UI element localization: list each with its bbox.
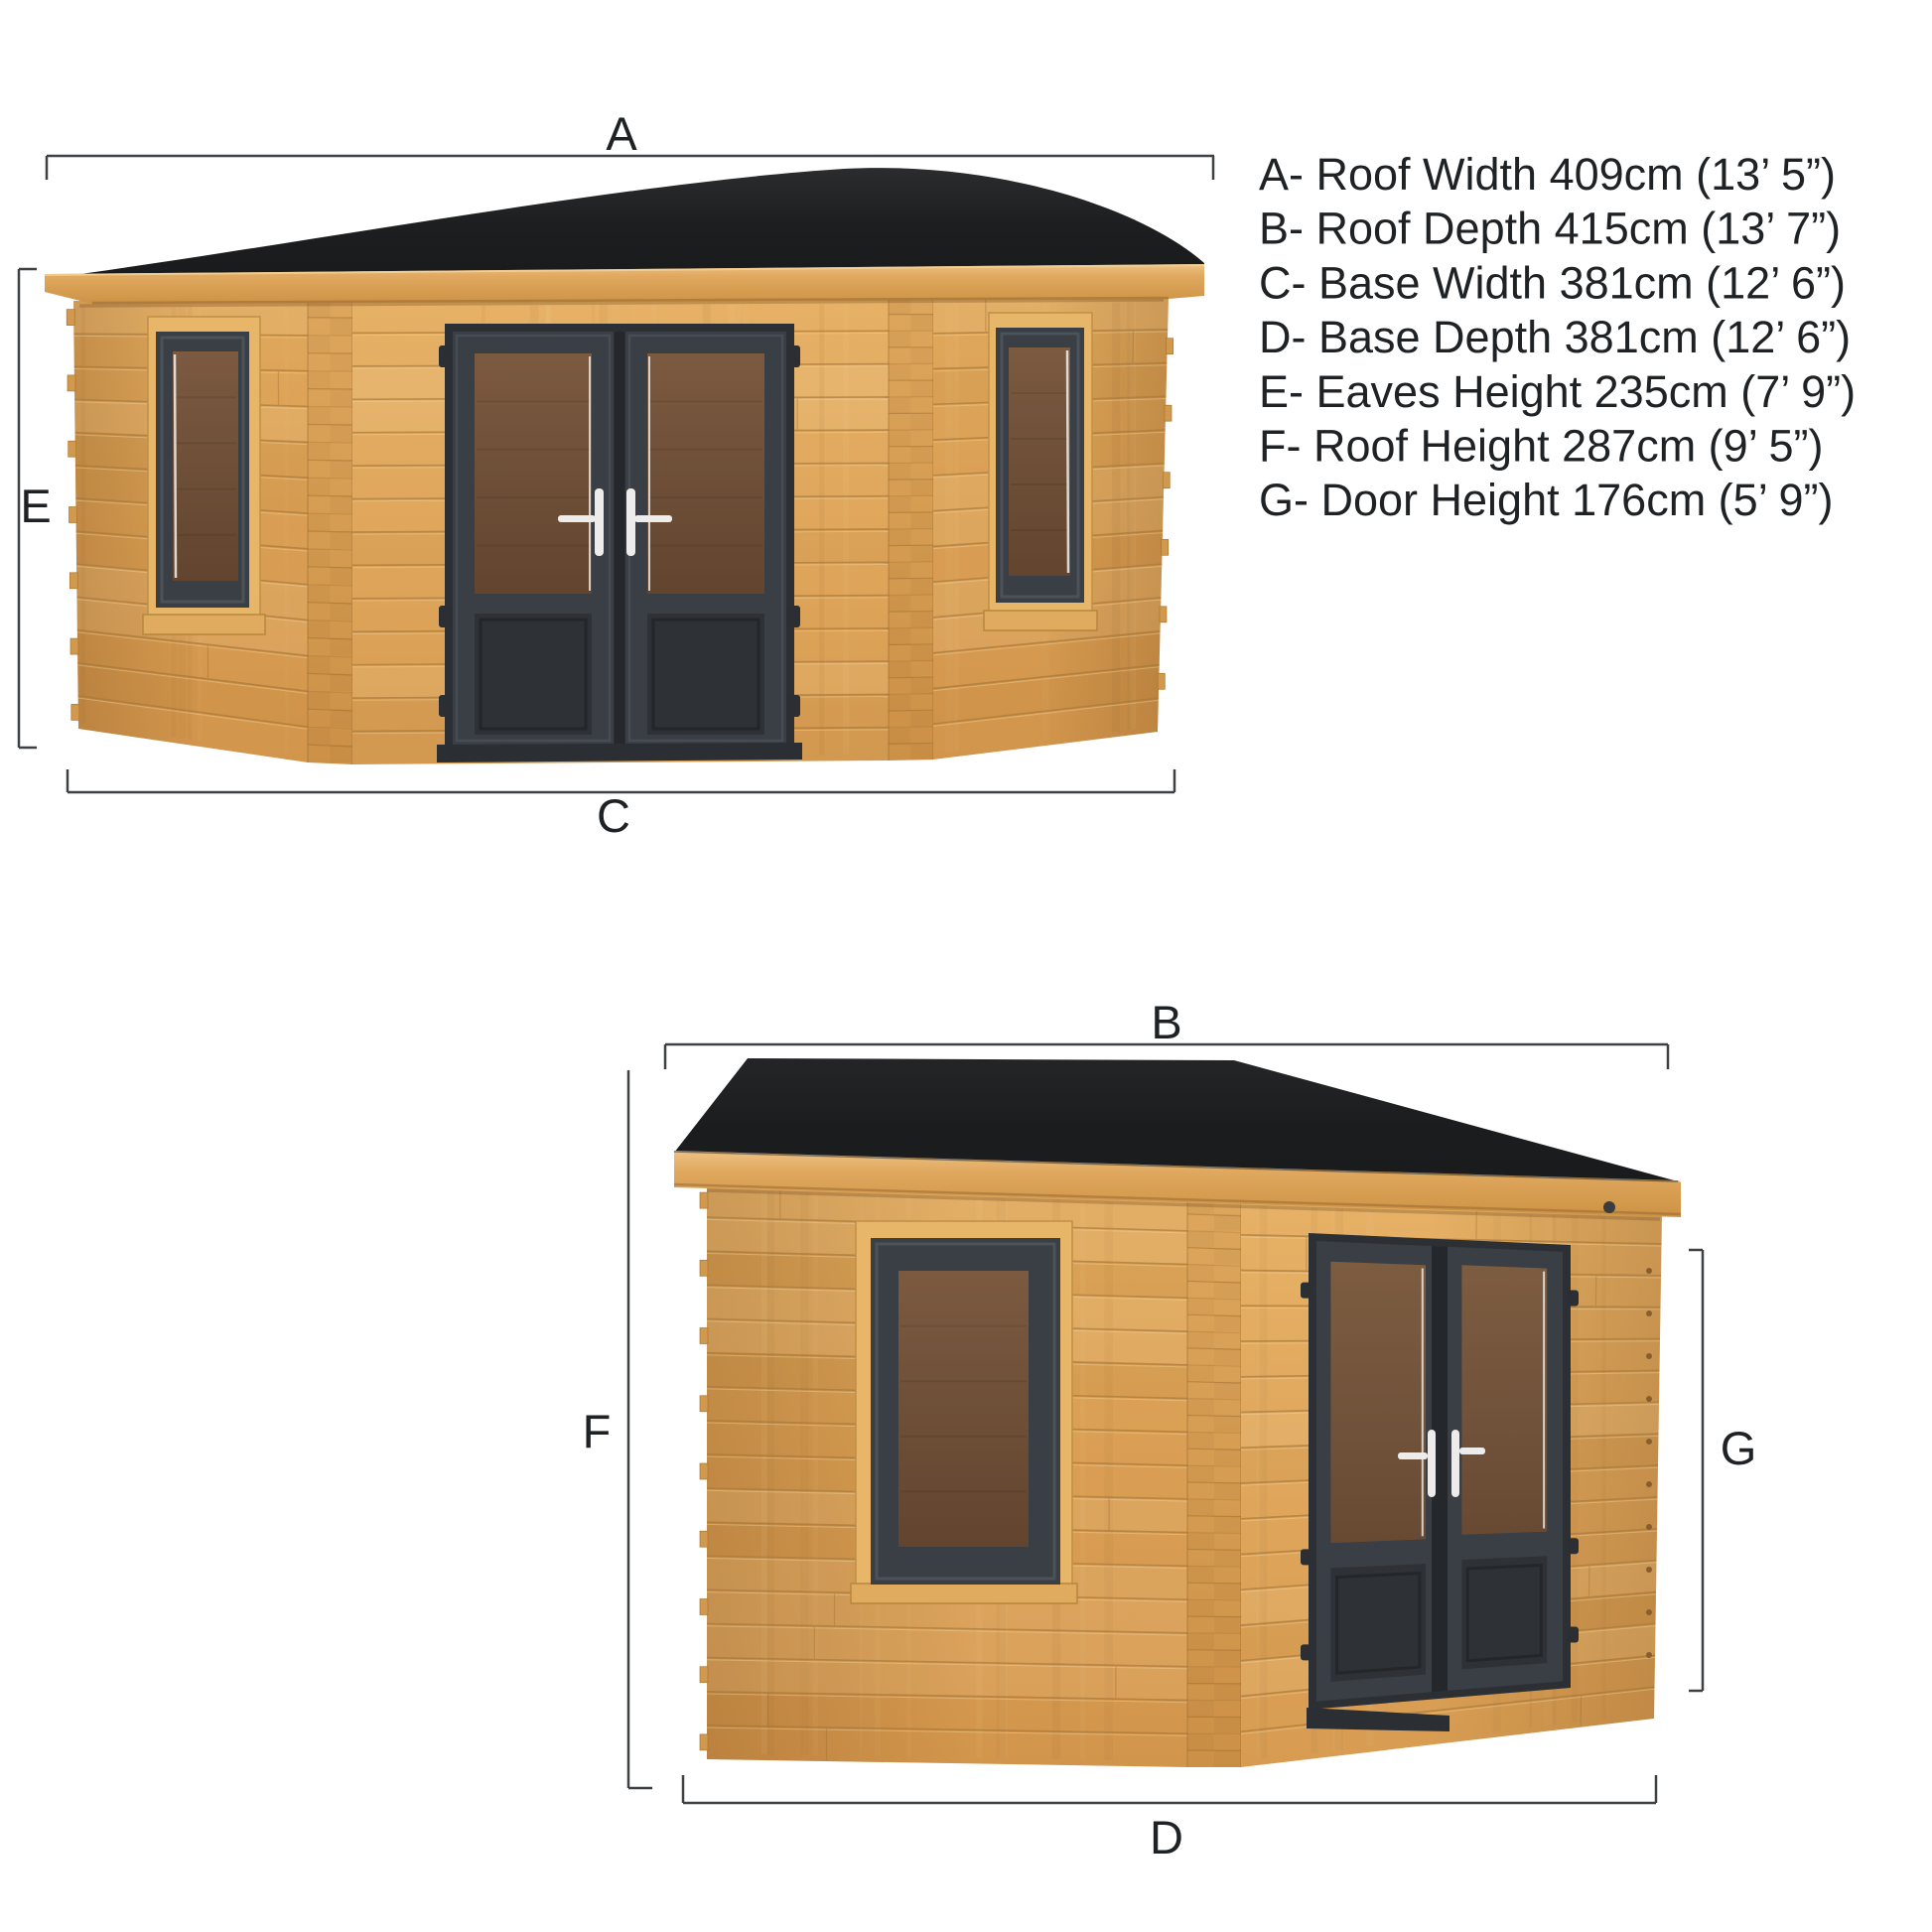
svg-text:D- Base Depth 381cm (12’ 6”): D- Base Depth 381cm (12’ 6”) [1259,312,1851,362]
svg-text:G: G [1721,1422,1757,1474]
svg-text:D: D [1150,1811,1183,1863]
svg-text:A- Roof Width 409cm (13’ 5”): A- Roof Width 409cm (13’ 5”) [1259,149,1836,200]
svg-text:F- Roof Height 287cm (9’ 5”): F- Roof Height 287cm (9’ 5”) [1259,421,1824,472]
svg-text:B- Roof Depth 415cm (13’ 7”): B- Roof Depth 415cm (13’ 7”) [1259,204,1841,254]
svg-text:C- Base Width 381cm (12’ 6”): C- Base Width 381cm (12’ 6”) [1259,257,1846,308]
svg-text:F: F [583,1405,612,1457]
svg-text:E: E [20,480,51,532]
svg-text:B: B [1151,996,1181,1048]
svg-text:G- Door Height 176cm (5’ 9”): G- Door Height 176cm (5’ 9”) [1259,475,1834,525]
svg-text:C: C [597,789,630,842]
svg-text:E- Eaves Height 235cm (7’ 9”): E- Eaves Height 235cm (7’ 9”) [1259,366,1856,417]
svg-text:A: A [606,107,637,160]
